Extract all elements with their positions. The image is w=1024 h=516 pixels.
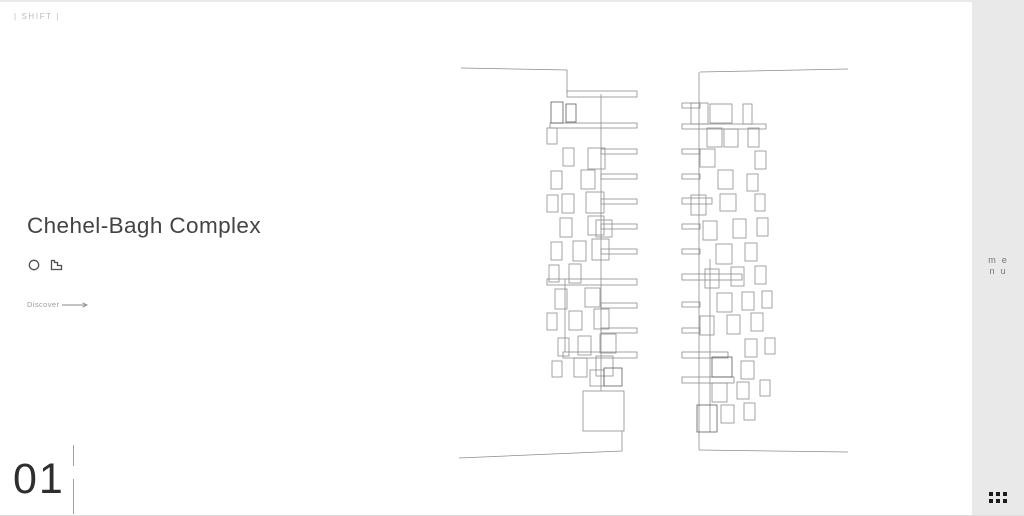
- stairs-icon: [49, 258, 64, 272]
- right-sidebar: me nu: [972, 2, 1024, 515]
- menu-label-line2: nu: [972, 266, 1024, 277]
- page: | SHIFT | Chehel-Bagh Complex Discover 0…: [0, 0, 1024, 516]
- pagination-line-top: [73, 445, 74, 466]
- menu-button[interactable]: me nu: [972, 255, 1024, 277]
- grid-dot: [989, 499, 993, 503]
- apps-grid-icon[interactable]: [989, 492, 1007, 503]
- discover-link[interactable]: Discover: [27, 300, 89, 309]
- arrow-right-icon: [62, 301, 89, 309]
- brand-logo[interactable]: | SHIFT |: [14, 12, 60, 21]
- grid-dot: [996, 499, 1000, 503]
- grid-dot: [989, 492, 993, 496]
- project-title: Chehel-Bagh Complex: [27, 213, 261, 239]
- grid-dot: [1003, 492, 1007, 496]
- menu-label-line1: me: [972, 255, 1024, 266]
- slide-number: 01: [13, 458, 65, 501]
- site-plan-svg: [450, 57, 860, 467]
- circle-icon: [27, 258, 41, 272]
- grid-dot: [1003, 499, 1007, 503]
- discover-label: Discover: [27, 300, 59, 309]
- grid-dot: [996, 492, 1000, 496]
- project-type-icons: [27, 258, 64, 272]
- project-drawing: [450, 57, 860, 467]
- pagination-line-bottom: [73, 479, 74, 514]
